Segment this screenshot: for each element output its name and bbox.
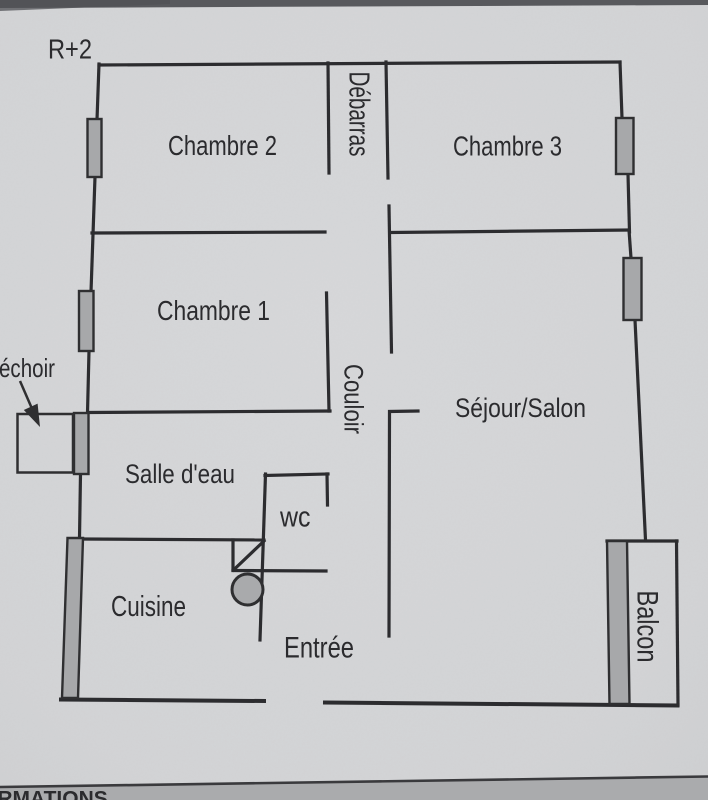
- svg-text:Chambre 3: Chambre 3: [453, 131, 562, 162]
- svg-text:R+2: R+2: [48, 34, 92, 65]
- svg-text:Balcon: Balcon: [631, 591, 664, 663]
- svg-text:Salle d'eau: Salle d'eau: [125, 459, 235, 489]
- svg-text:échoir: échoir: [0, 353, 55, 383]
- svg-text:Chambre 1: Chambre 1: [157, 295, 270, 326]
- svg-text:Chambre 2: Chambre 2: [168, 130, 277, 161]
- svg-text:Couloir: Couloir: [339, 364, 369, 434]
- svg-text:ORMATIONS: ORMATIONS: [0, 788, 108, 800]
- svg-text:Débarras: Débarras: [343, 72, 375, 157]
- svg-text:Cuisine: Cuisine: [111, 591, 186, 623]
- svg-text:Entrée: Entrée: [284, 632, 354, 665]
- svg-text:wc: wc: [279, 502, 310, 534]
- svg-text:Séjour/Salon: Séjour/Salon: [455, 393, 586, 423]
